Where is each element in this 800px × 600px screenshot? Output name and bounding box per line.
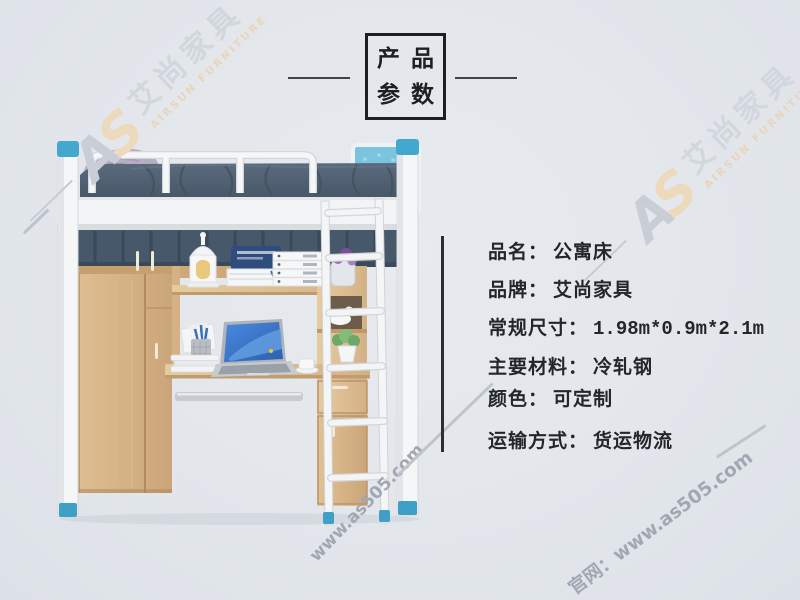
book-stack xyxy=(171,355,220,372)
spec-label: 常规尺寸： xyxy=(488,317,588,339)
watermark-url-bottom-right: 官网：www.as505.com xyxy=(562,444,757,600)
page-title-line1: 产品 xyxy=(377,41,445,77)
spec-label: 颜色： xyxy=(488,388,548,410)
spec-value: 冷轧钢 xyxy=(593,356,653,378)
spec-row-material: 主要材料：冷轧钢 xyxy=(488,352,653,379)
spec-label: 主要材料： xyxy=(488,356,588,378)
poster-canvas: AS 艾尚家具 AIRSUN FURNITURE AS 艾尚家具 AIRSUN … xyxy=(0,0,800,600)
spec-label: 品名： xyxy=(488,241,548,263)
brand-as-logo-icon: AS xyxy=(618,165,703,250)
decor-drawer-box xyxy=(273,252,323,286)
spec-value: 可定制 xyxy=(553,388,613,410)
spec-row-name: 品名：公寓床 xyxy=(488,237,613,264)
spec-value: 货运物流 xyxy=(593,430,673,452)
spec-row-size: 常规尺寸：1.98m*0.9m*2.1m xyxy=(488,313,764,340)
spec-value: 公寓床 xyxy=(553,241,613,263)
product-image xyxy=(35,133,435,533)
spec-value: 1.98m*0.9m*2.1m xyxy=(593,318,764,340)
laptop xyxy=(211,319,298,377)
page-title-line2: 参数 xyxy=(377,77,445,113)
spec-value: 艾尚家具 xyxy=(553,279,633,301)
spec-label: 品牌： xyxy=(488,279,548,301)
spec-row-color: 颜色：可定制 xyxy=(488,384,613,411)
brand-name-en: AIRSUN FURNITURE xyxy=(703,74,800,191)
spec-row-brand: 品牌：艾尚家具 xyxy=(488,275,633,302)
bed-upper xyxy=(57,144,419,230)
brand-name-cn: 艾尚家具 xyxy=(679,49,800,180)
floor-shadow xyxy=(60,513,420,525)
title-divider-right xyxy=(455,77,517,79)
brand-name-cn: 艾尚家具 xyxy=(125,0,259,120)
watermark-dash-icon xyxy=(716,424,766,458)
specs-divider xyxy=(441,236,444,452)
title-box: 产品 参数 xyxy=(365,33,446,120)
spec-label: 运输方式： xyxy=(488,430,588,452)
wardrobe xyxy=(67,251,172,493)
title-divider-left xyxy=(288,77,350,79)
coffee-cup xyxy=(296,359,318,374)
spec-row-shipping: 运输方式：货运物流 xyxy=(488,426,673,453)
brand-name-en: AIRSUN FURNITURE xyxy=(149,14,270,131)
